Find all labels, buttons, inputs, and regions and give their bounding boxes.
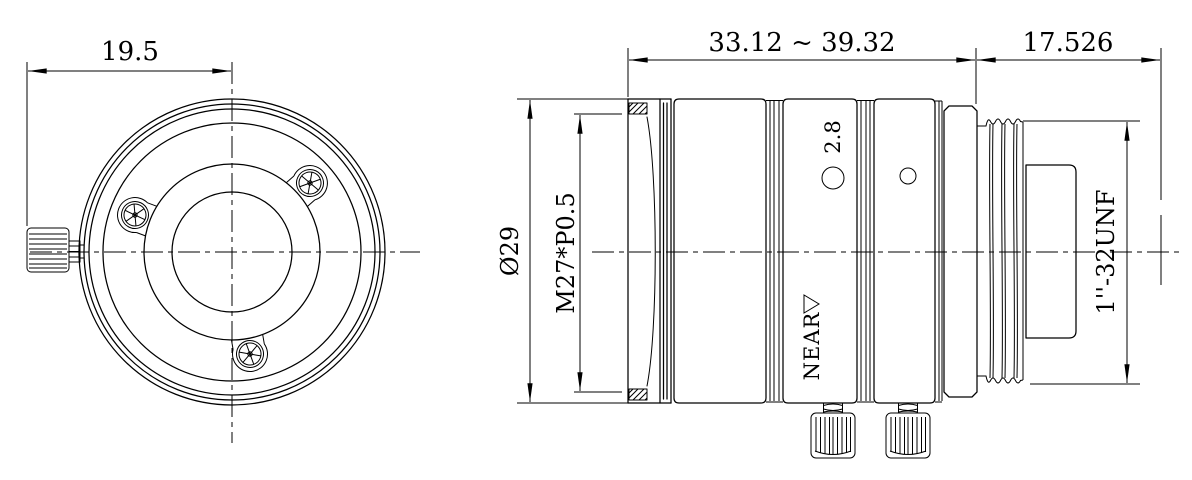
dim-filter-thread-text: M27*P0.5 [552, 192, 580, 313]
canvas-background [0, 0, 1192, 480]
near-label: NEAR [800, 311, 824, 380]
dim-mount-thread-text: 1''-32UNF [1092, 190, 1120, 315]
lens-technical-drawing: 2.8 NEAR [0, 0, 1192, 480]
dim-front-offset-text: 19.5 [101, 37, 159, 67]
dim-body-length-text: 33.12 ~ 39.32 [708, 28, 895, 58]
dim-flange-distance-text: 17.526 [1023, 28, 1114, 58]
aperture-marking: 2.8 [821, 120, 845, 153]
drawing-canvas: 2.8 NEAR [0, 0, 1192, 480]
dim-outer-diameter-text: Ø29 [496, 226, 524, 276]
